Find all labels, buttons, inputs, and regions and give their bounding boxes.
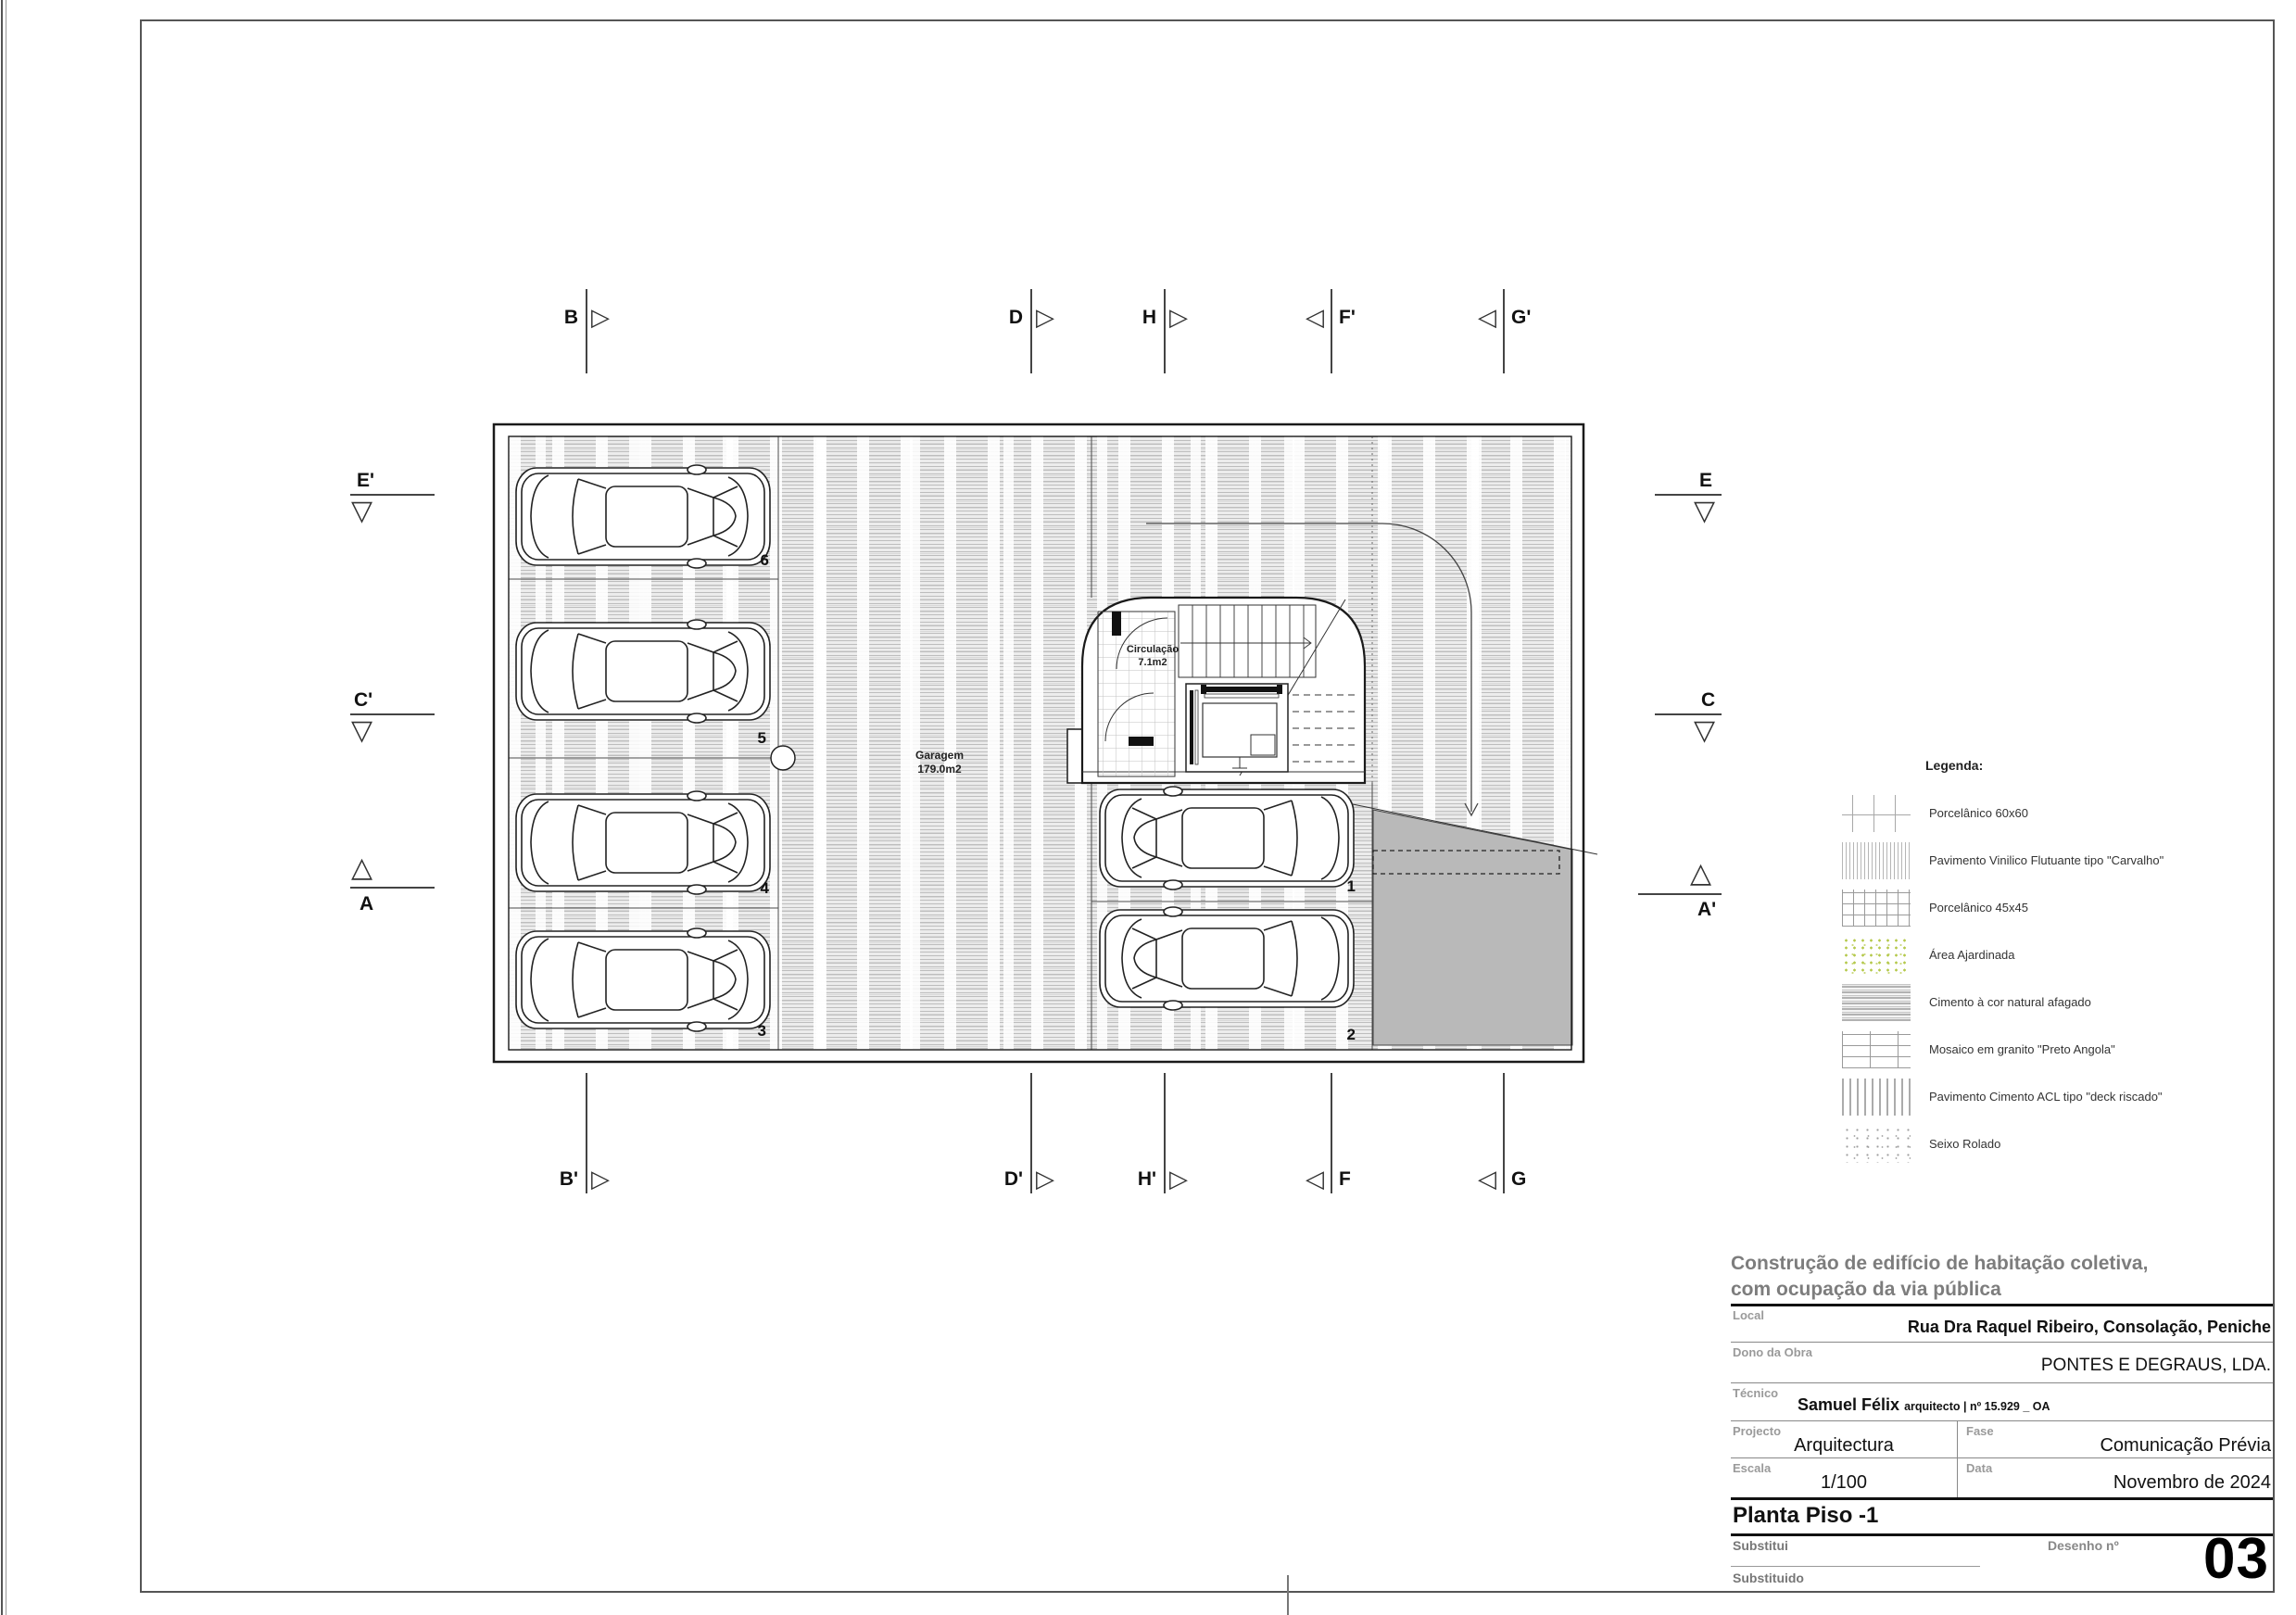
car-stall-2: [1096, 906, 1357, 1011]
stall-number-2: 2: [1335, 1027, 1356, 1042]
substitui-label: Substitui: [1733, 1538, 1788, 1553]
sheet-title: Planta Piso -1: [1733, 1503, 1878, 1529]
legend-item-label: Porcelânico 60x60: [1929, 795, 2028, 832]
circulation-room-area: 7.1m2: [1115, 656, 1191, 669]
technician-name: Samuel Félix: [1798, 1395, 1899, 1414]
section-line-F2: [1331, 289, 1332, 373]
legend-item: Pavimento Cimento ACL tipo "deck riscado…: [1842, 1079, 2277, 1116]
section-line-D: [1030, 289, 1032, 373]
column-divider: [1957, 1457, 1958, 1497]
garage-room-name: Garagem: [884, 749, 995, 763]
legend-item: Porcelânico 60x60: [1842, 795, 2277, 832]
section-arrow-down-icon: ▽: [351, 498, 372, 525]
legend-item: Seixo Rolado: [1842, 1126, 2277, 1163]
section-label-E2: E': [357, 471, 374, 490]
local-value: Rua Dra Raquel Ribeiro, Consolação, Peni…: [1908, 1318, 2271, 1337]
legend-item: Área Ajardinada: [1842, 937, 2277, 974]
legend-item: Cimento à cor natural afagado: [1842, 984, 2277, 1021]
section-arrow-right-icon: ▷: [591, 305, 610, 329]
section-arrow-right-icon: ▷: [591, 1167, 610, 1191]
legend-item-label: Pavimento Vinilico Flutuante tipo "Carva…: [1929, 842, 2164, 879]
owner-value: PONTES E DEGRAUS, LDA.: [2041, 1356, 2271, 1376]
legend-swatch-porcelanico-45-icon: [1842, 890, 1911, 927]
section-arrow-down-icon: ▽: [1694, 717, 1715, 745]
divider: [1731, 1420, 2273, 1421]
owner-label: Dono da Obra: [1733, 1345, 1812, 1359]
legend-swatch-cimento-icon: [1842, 984, 1911, 1021]
column-divider: [1957, 1420, 1958, 1457]
drawing-number-label: Desenho nº: [2048, 1538, 2119, 1553]
legend-item-label: Cimento à cor natural afagado: [1929, 984, 2091, 1021]
legend-item: Mosaico em granito "Preto Angola": [1842, 1031, 2277, 1068]
car-stall-5: [512, 619, 774, 724]
drawing-sheet: { "icons": { "tri_right": "▷", "tri_left…: [0, 0, 2296, 1615]
legend-swatch-deck-riscado-icon: [1842, 1079, 1911, 1116]
garage-room-label: Garagem 179.0m2: [884, 749, 995, 776]
section-arrow-up-icon: △: [351, 854, 372, 882]
section-line-B: [586, 289, 587, 373]
stall-number-6: 6: [749, 552, 769, 568]
section-line-G: [1503, 1073, 1505, 1193]
section-label-B2: B': [541, 1169, 578, 1189]
car-stall-1: [1096, 786, 1357, 890]
legend-item-label: Área Ajardinada: [1929, 937, 2015, 974]
section-arrow-left-icon: ◁: [1478, 1167, 1496, 1191]
project-title: Construção de edifício de habitação cole…: [1731, 1251, 2148, 1303]
legend-swatch-vinilico-icon: [1842, 842, 1911, 879]
legend-title: Legenda:: [1925, 758, 1983, 773]
divider: [1731, 1457, 2273, 1458]
section-label-F: F: [1339, 1169, 1351, 1189]
phase-label: Fase: [1966, 1424, 1994, 1438]
legend-item-label: Seixo Rolado: [1929, 1126, 2000, 1163]
legend-item: Pavimento Vinilico Flutuante tipo "Carva…: [1842, 842, 2277, 879]
legend-swatch-ajardinada-icon: [1842, 937, 1911, 974]
section-label-C: C: [1701, 690, 1715, 710]
section-label-F2: F': [1339, 308, 1356, 327]
title-block: Construção de edifício de habitação cole…: [1731, 1249, 2273, 1591]
section-label-H2: H': [1119, 1169, 1156, 1189]
circulation-room-label: Circulação 7.1m2: [1115, 643, 1191, 669]
technician-suffix: arquitecto | nº 15.929 _ OA: [1904, 1400, 2050, 1413]
stall-number-1: 1: [1335, 878, 1356, 894]
section-line-F: [1331, 1073, 1332, 1193]
divider: [1731, 1497, 2273, 1500]
section-arrow-left-icon: ◁: [1478, 305, 1496, 329]
section-label-H: H: [1119, 308, 1156, 327]
section-arrow-right-icon: ▷: [1169, 1167, 1188, 1191]
legend-swatch-mosaico-icon: [1842, 1031, 1911, 1068]
section-label-D: D: [986, 308, 1023, 327]
section-arrow-down-icon: ▽: [351, 717, 372, 745]
section-line-B2: [586, 1073, 587, 1193]
section-arrow-down-icon: ▽: [1694, 498, 1715, 525]
car-stall-6: [512, 464, 774, 569]
legend-item: Porcelânico 45x45: [1842, 890, 2277, 927]
section-arrow-left-icon: ◁: [1306, 305, 1324, 329]
stall-number-3: 3: [746, 1023, 766, 1039]
date-label: Data: [1966, 1461, 1992, 1475]
circulation-room-name: Circulação: [1115, 643, 1191, 656]
legend-swatch-seixo-icon: [1842, 1126, 1911, 1163]
legend-item-label: Pavimento Cimento ACL tipo "deck riscado…: [1929, 1079, 2163, 1116]
section-arrow-up-icon: △: [1690, 860, 1711, 888]
stall-number-4: 4: [749, 880, 769, 896]
legend-item-label: Mosaico em granito "Preto Angola": [1929, 1031, 2115, 1068]
page-left-edge-line-2: [6, 0, 6, 1615]
phase-value: Comunicação Prévia: [2100, 1435, 2271, 1457]
garage-room-area: 179.0m2: [884, 763, 995, 776]
drawing-number: 03: [2203, 1532, 2269, 1587]
section-line-H: [1164, 289, 1166, 373]
section-arrow-right-icon: ▷: [1036, 305, 1054, 329]
legend-swatch-porcelanico-60-icon: [1842, 795, 1911, 832]
section-label-A2: A': [1697, 900, 1716, 919]
project-title-line2: com ocupação da via pública: [1731, 1277, 2148, 1303]
technician-label: Técnico: [1733, 1386, 1778, 1400]
car-stall-3: [512, 927, 774, 1032]
divider: [1731, 1382, 2273, 1383]
project-title-line1: Construção de edifício de habitação cole…: [1731, 1251, 2148, 1277]
divider: [1731, 1533, 2273, 1536]
section-label-G: G: [1511, 1169, 1526, 1189]
date-value: Novembro de 2024: [2113, 1472, 2271, 1494]
scale-value: 1/100: [1731, 1472, 1957, 1494]
section-label-C2: C': [354, 690, 372, 710]
section-label-G2: G': [1511, 308, 1531, 327]
section-arrow-right-icon: ▷: [1169, 305, 1188, 329]
section-line-G2: [1503, 289, 1505, 373]
section-label-B: B: [541, 308, 578, 327]
section-line-A: [350, 887, 435, 889]
section-label-D2: D': [986, 1169, 1023, 1189]
section-arrow-left-icon: ◁: [1306, 1167, 1324, 1191]
section-line-H2: [1164, 1073, 1166, 1193]
section-label-A: A: [360, 894, 373, 914]
project-value: Arquitectura: [1731, 1435, 1957, 1457]
page-left-edge-line: [1, 0, 3, 1615]
section-arrow-right-icon: ▷: [1036, 1167, 1054, 1191]
section-line-D2: [1030, 1073, 1032, 1193]
stall-number-5: 5: [746, 730, 766, 746]
local-label: Local: [1733, 1308, 1764, 1322]
divider: [1731, 1566, 1980, 1567]
fold-mark: [1287, 1575, 1289, 1615]
legend-item-label: Porcelânico 45x45: [1929, 890, 2028, 927]
substituido-label: Substituido: [1733, 1571, 1804, 1585]
divider: [1731, 1342, 2273, 1343]
technician-value: Samuel Félix arquitecto | nº 15.929 _ OA: [1798, 1395, 2050, 1415]
divider: [1731, 1304, 2273, 1306]
car-stall-4: [512, 790, 774, 895]
section-line-A2: [1638, 893, 1722, 895]
section-label-E: E: [1699, 471, 1712, 490]
